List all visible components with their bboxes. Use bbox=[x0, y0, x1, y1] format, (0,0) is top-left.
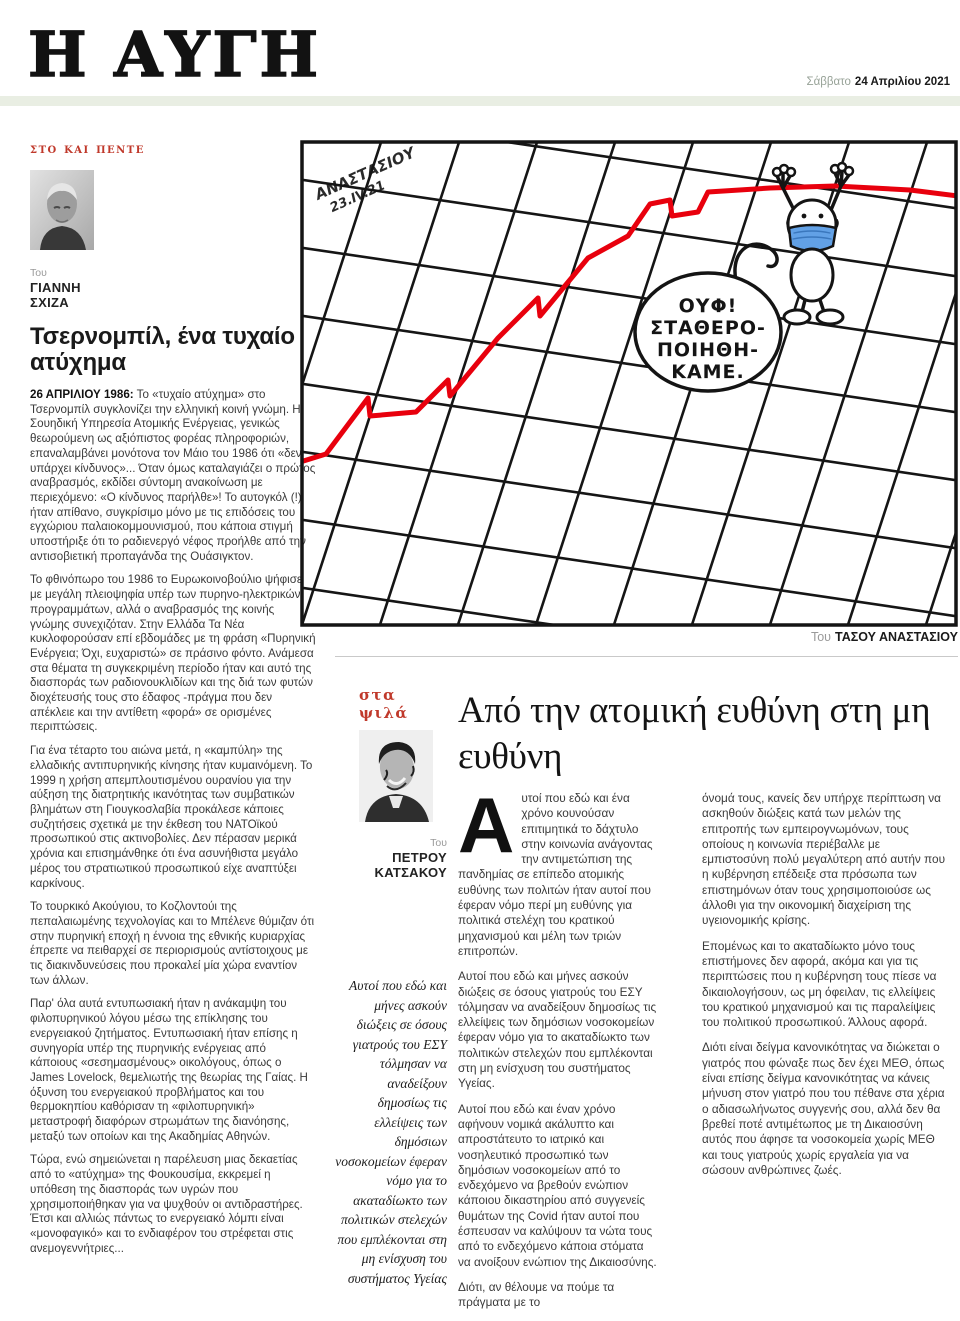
paragraph-lead-label: 26 ΑΠΡΙΛΙΟΥ 1986: bbox=[30, 388, 134, 401]
article-paragraph: Παρ' όλα αυτά εντυπωσιακή ήταν η ανάκαμψ… bbox=[30, 997, 316, 1144]
main-article-column-1: Αυτοί που εδώ και ένα χρόνο κουνούσαν επ… bbox=[458, 791, 658, 1321]
paragraph-lead-text: Το «τυχαίο ατύχημα» στο Τσερνομπίλ συγκλ… bbox=[30, 388, 315, 563]
quote-column: στα ψιλά Του ΠΕΤΡΟΥ ΚΑΤΣΑΚΟΥ Αυτοί που ε… bbox=[335, 686, 447, 1288]
article-paragraph: όνομά τους, κανείς δεν υπήρχε περίπτωση … bbox=[702, 791, 950, 929]
byline-schizas: Του ΓΙΑΝΝΗ ΣΧΙΖΑ bbox=[30, 267, 316, 310]
author-photo-katsakos bbox=[359, 730, 447, 827]
author-photo-schizas bbox=[30, 170, 316, 255]
drop-cap: Α bbox=[458, 794, 514, 856]
speech-bubble-text-line2: ΣΤΑΘΕΡΟ- bbox=[650, 317, 766, 339]
article-paragraph: 26 ΑΠΡΙΛΙΟΥ 1986: Το «τυχαίο ατύχημα» στ… bbox=[30, 388, 316, 564]
left-article-title: Τσερνομπίλ, ένα τυχαίο ατύχημα bbox=[30, 324, 316, 376]
masthead-title: Η ΑΥΓΗ bbox=[28, 18, 321, 91]
byline-prefix: Του bbox=[335, 837, 447, 850]
section-divider-rule bbox=[335, 656, 958, 657]
editorial-cartoon: ΟΥΦ! ΣΤΑΘΕΡΟ- ΠΟΙΗΘΗ- ΚΑΜΕ. ΑΝΑΣΤΑΣΙΟΥ 2… bbox=[300, 140, 958, 627]
section-label-left: στο και πέντε bbox=[30, 141, 145, 157]
article-paragraph: Τώρα, ενώ σημειώνεται η παρέλευση μιας δ… bbox=[30, 1153, 316, 1256]
speech-bubble-text-line3: ΠΟΙΗΘΗ- bbox=[657, 339, 759, 361]
article-paragraph: Διότι είναι δείγμα κανονικότητας να διώκ… bbox=[702, 1040, 950, 1178]
article-paragraph: Αυτοί που εδώ και μήνες ασκούν διώξεις σ… bbox=[458, 969, 658, 1091]
speech-bubble-text-line4: ΚΑΜΕ. bbox=[671, 361, 745, 383]
article-paragraph: Αυτοί που εδώ και ένα χρόνο κουνούσαν επ… bbox=[458, 791, 658, 959]
article-paragraph: Το φθινόπωρο του 1986 το Ευρωκοινοβούλιο… bbox=[30, 573, 316, 735]
cartoon-grid bbox=[300, 140, 958, 627]
cartoon-credit-name: ΤΑΣΟΥ ΑΝΑΣΤΑΣΙΟΥ bbox=[835, 630, 958, 644]
masthead-rule-band bbox=[0, 96, 960, 106]
byline-name-line2: ΚΑΤΣΑΚΟΥ bbox=[335, 865, 447, 880]
byline-name-line1: ΠΕΤΡΟΥ bbox=[335, 850, 447, 865]
byline-prefix: Του bbox=[30, 267, 316, 280]
main-article-headline: Από την ατομική ευθύνη στη μη ευθύνη bbox=[458, 688, 960, 780]
left-article-body: 26 ΑΠΡΙΛΙΟΥ 1986: Το «τυχαίο ατύχημα» στ… bbox=[30, 388, 316, 1256]
speech-bubble: ΟΥΦ! ΣΤΑΘΕΡΟ- ΠΟΙΗΘΗ- ΚΑΜΕ. bbox=[635, 244, 781, 391]
cartoon-signature: ΑΝΑΣΤΑΣΙΟΥ 23.IV.21 bbox=[311, 143, 426, 220]
cartoon-frame bbox=[302, 142, 956, 625]
author-photo-katsakos-image bbox=[359, 730, 433, 822]
edition-date: Σάββατο24 Απριλίου 2021 bbox=[807, 76, 951, 88]
byline-katsakos: Του ΠΕΤΡΟΥ ΚΑΤΣΑΚΟΥ bbox=[335, 837, 447, 880]
article-paragraph: Για ένα τέταρτο του αιώνα μετά, η «καμπύ… bbox=[30, 744, 316, 891]
pull-quote: Αυτοί που εδώ και μήνες ασκούν διώξεις σ… bbox=[335, 976, 447, 1288]
main-article-column-2: όνομά τους, κανείς δεν υπήρχε περίπτωση … bbox=[702, 791, 950, 1188]
byline-name-line1: ΓΙΑΝΝΗ bbox=[30, 280, 316, 295]
article-paragraph: Διότι, αν θέλουμε να πούμε τα πράγματα μ… bbox=[458, 1280, 658, 1311]
cartoon-credit: ΤουΤΑΣΟΥ ΑΝΑΣΤΑΣΙΟΥ bbox=[300, 630, 958, 644]
cartoon-credit-prefix: Του bbox=[811, 630, 831, 644]
edition-date-full: 24 Απριλίου 2021 bbox=[855, 76, 950, 88]
article-paragraph: Το τουρκικό Ακούγιου, το Κοζλοντούι της … bbox=[30, 900, 316, 988]
edition-date-day: Σάββατο bbox=[807, 76, 851, 88]
article-paragraph: Αυτοί που εδώ και έναν χρόνο αφήνουν νομ… bbox=[458, 1102, 658, 1270]
byline-name-line2: ΣΧΙΖΑ bbox=[30, 295, 316, 310]
editorial-cartoon-image: ΟΥΦ! ΣΤΑΘΕΡΟ- ΠΟΙΗΘΗ- ΚΑΜΕ. ΑΝΑΣΤΑΣΙΟΥ 2… bbox=[300, 140, 958, 627]
left-opinion-column: στο και πέντε Του ΓΙΑΝΝΗ ΣΧΙΖΑ Τσερνομπί… bbox=[30, 140, 316, 1265]
speech-bubble-text-line1: ΟΥΦ! bbox=[679, 295, 738, 317]
newspaper-page: { "masthead": { "title": "Η ΑΥΓΗ", "date… bbox=[0, 0, 960, 1207]
author-photo-schizas-image bbox=[30, 170, 94, 250]
article-paragraph: Επομένως και το ακαταδίωκτο μόνο τους επ… bbox=[702, 939, 950, 1031]
section-label-quote: στα ψιλά bbox=[359, 686, 447, 722]
